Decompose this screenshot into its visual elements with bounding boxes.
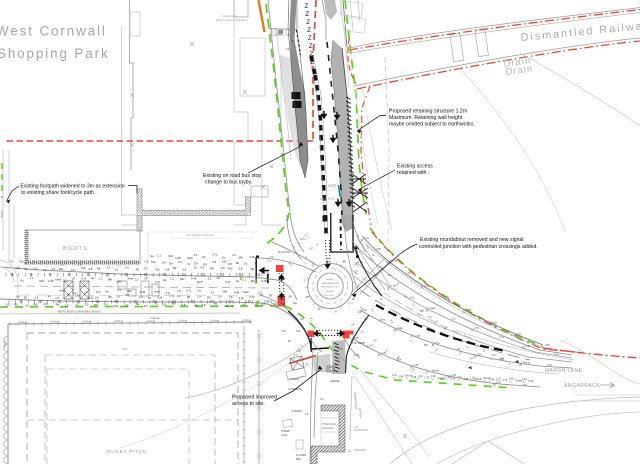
svg-text:1.10: 1.10	[444, 376, 449, 379]
svg-text:THRESHOLD: THRESHOLD	[322, 424, 337, 426]
svg-text:1.24: 1.24	[392, 374, 397, 377]
svg-text:0.8: 0.8	[125, 304, 129, 308]
svg-text:Z: Z	[307, 27, 311, 34]
svg-text:1.61: 1.61	[367, 345, 372, 348]
svg-text:0.5: 0.5	[221, 266, 225, 270]
svg-text:1.2k: 1.2k	[239, 296, 245, 300]
svg-text:access to site.: access to site.	[232, 401, 265, 407]
svg-text:1.82: 1.82	[466, 309, 471, 312]
svg-text:1.10: 1.10	[451, 317, 456, 320]
svg-text:1.2: 1.2	[300, 238, 304, 241]
svg-text:0.9: 0.9	[6, 303, 10, 307]
svg-text:1.4: 1.4	[197, 294, 201, 298]
svg-text:IC: IC	[194, 266, 197, 270]
svg-text:0.8: 0.8	[16, 266, 20, 270]
svg-text:to existing share foot/cycle p: to existing share foot/cycle path .	[21, 190, 97, 196]
svg-text:Gu: Gu	[91, 276, 95, 280]
svg-text:RUGBY PITCH: RUGBY PITCH	[107, 449, 147, 454]
svg-text:LC: LC	[287, 34, 290, 37]
svg-text:Existing roundabout removed an: Existing roundabout removed and new sign…	[420, 237, 524, 243]
svg-text:Tar: Tar	[250, 267, 254, 271]
svg-text:Tar: Tar	[173, 266, 177, 270]
svg-text:LEVELLED: LEVELLED	[322, 428, 334, 430]
svg-text:MH: MH	[180, 277, 184, 281]
svg-text:0.5: 0.5	[71, 268, 75, 272]
svg-text:TOP KERB: TOP KERB	[352, 342, 365, 345]
svg-text:Railings: Railings	[147, 321, 156, 323]
svg-text:0.55: 0.55	[354, 337, 359, 340]
svg-text:0.5: 0.5	[261, 302, 265, 306]
svg-text:Existing on road bus stop: Existing on road bus stop	[203, 173, 261, 179]
svg-text:1.45: 1.45	[412, 376, 417, 379]
svg-text:0.55: 0.55	[451, 377, 456, 380]
svg-text:0.98: 0.98	[477, 378, 482, 381]
svg-text:TaC: TaC	[296, 330, 301, 333]
svg-text:SV: SV	[47, 294, 51, 298]
svg-text:Z: Z	[305, 3, 309, 10]
svg-text:GRAVEL: GRAVEL	[330, 380, 341, 383]
svg-text:MH: MH	[424, 344, 428, 347]
svg-text:SV: SV	[126, 293, 130, 297]
svg-text:IC: IC	[76, 302, 79, 306]
svg-text:0.7c: 0.7c	[186, 289, 192, 293]
svg-text:BT: BT	[269, 294, 273, 298]
svg-text:MARSH LANE: MARSH LANE	[545, 368, 583, 374]
svg-text:MH: MH	[223, 289, 227, 293]
svg-text:1.82: 1.82	[522, 384, 527, 387]
svg-text:TARMAC: TARMAC	[292, 410, 303, 413]
svg-text:0.9: 0.9	[125, 266, 129, 270]
svg-text:1.1: 1.1	[232, 253, 236, 257]
svg-text:Grass: Grass	[429, 307, 436, 310]
svg-text:TaC: TaC	[81, 266, 86, 270]
svg-text:1.24: 1.24	[554, 353, 559, 356]
svg-text:1.2k: 1.2k	[157, 296, 163, 300]
svg-text:0.45: 0.45	[234, 290, 240, 294]
svg-text:BT: BT	[24, 295, 28, 299]
svg-text:0.55: 0.55	[474, 327, 479, 330]
svg-text:Tar: Tar	[56, 303, 60, 307]
svg-text:RS: RS	[94, 303, 98, 307]
svg-text:MH: MH	[239, 256, 243, 260]
svg-text:0.98: 0.98	[376, 248, 381, 251]
svg-text:0.5: 0.5	[104, 303, 108, 307]
svg-text:1.1: 1.1	[242, 278, 246, 282]
svg-text:change to bus layby.: change to bus layby.	[205, 180, 252, 186]
svg-text:TP: TP	[229, 296, 233, 300]
svg-text:1.45: 1.45	[490, 379, 495, 382]
svg-text:TaC: TaC	[151, 260, 156, 264]
svg-text:0.45: 0.45	[175, 256, 181, 260]
svg-text:WITH SIGN 0.8 7m: WITH SIGN 0.8 7m	[321, 287, 339, 289]
svg-text:0.75: 0.75	[503, 379, 508, 382]
svg-text:2.2: 2.2	[193, 253, 197, 257]
svg-text:2.35: 2.35	[526, 345, 531, 348]
svg-text:0.9: 0.9	[51, 267, 55, 271]
svg-text:1.9: 1.9	[178, 260, 182, 264]
svg-text:0.45: 0.45	[48, 279, 54, 283]
svg-text:TP: TP	[147, 296, 151, 300]
svg-text:0.9: 0.9	[492, 354, 496, 357]
svg-text:0.8: 0.8	[89, 267, 93, 271]
svg-text:SHRUB AROUND: SHRUB AROUND	[322, 282, 339, 285]
svg-text:Tar: Tar	[24, 267, 28, 271]
svg-text:Tarmac: Tarmac	[523, 361, 532, 364]
svg-text:Railings: Railings	[243, 320, 252, 322]
svg-text:TaC: TaC	[194, 304, 199, 308]
svg-text:IC: IC	[380, 298, 383, 301]
svg-text:Railings: Railings	[211, 320, 220, 322]
svg-text:Kerb: Kerb	[59, 289, 65, 293]
svg-text:Proposed retaining structure 1: Proposed retaining structure 1.2m	[389, 109, 467, 115]
svg-text:0.55: 0.55	[416, 335, 421, 338]
svg-text:TaC: TaC	[440, 378, 445, 381]
svg-text:0.45: 0.45	[249, 255, 255, 259]
svg-text:0.45: 0.45	[261, 279, 267, 283]
svg-text:A30: A30	[328, 183, 337, 188]
svg-text:2.10: 2.10	[418, 375, 423, 378]
svg-text:0.8: 0.8	[239, 267, 243, 271]
svg-text:0.9: 0.9	[200, 266, 204, 270]
svg-text:1.10: 1.10	[522, 378, 527, 381]
svg-text:G.ily: G.ily	[88, 295, 94, 299]
svg-text:1.45: 1.45	[547, 364, 552, 367]
svg-text:1.9: 1.9	[182, 268, 186, 272]
svg-text:2.2: 2.2	[208, 277, 212, 281]
svg-text:1.82: 1.82	[509, 378, 514, 381]
svg-text:METAL POST & CHAIN/RING FENCE: METAL POST & CHAIN/RING FENCE	[58, 311, 101, 314]
svg-text:LP: LP	[177, 289, 180, 293]
svg-text:Kerb: Kerb	[128, 277, 134, 281]
svg-text:0.7c: 0.7c	[212, 253, 218, 257]
svg-text:1.1: 1.1	[170, 276, 174, 280]
svg-text:Tarmac: Tarmac	[432, 369, 441, 372]
svg-text:Gu: Gu	[150, 254, 154, 258]
svg-text:SV: SV	[207, 296, 211, 300]
svg-text:1.9: 1.9	[65, 303, 69, 307]
svg-text:LP: LP	[145, 277, 148, 281]
svg-text:1.9: 1.9	[33, 266, 37, 270]
svg-text:TaC: TaC	[222, 260, 227, 264]
svg-text:Maximum. Retaining wall height: Maximum. Retaining wall height	[389, 115, 463, 121]
svg-text:0.75: 0.75	[496, 381, 501, 384]
svg-text:1.24: 1.24	[470, 377, 475, 380]
svg-text:IC: IC	[372, 254, 375, 257]
svg-text:Railings: Railings	[3, 340, 5, 349]
svg-text:BED: BED	[296, 458, 301, 461]
svg-text:Railings: Railings	[179, 321, 188, 323]
svg-text:0.5: 0.5	[9, 260, 13, 264]
svg-text:Tar: Tar	[214, 301, 218, 305]
svg-text:1.2: 1.2	[428, 316, 432, 319]
svg-text:1.1: 1.1	[117, 288, 121, 292]
svg-text:CLAD: CLAD	[281, 434, 288, 437]
svg-text:Tar: Tar	[97, 266, 101, 270]
svg-text:CLG 1 RD: CLG 1 RD	[324, 295, 334, 297]
svg-text:maybe omitted subject to earth: maybe omitted subject to earthworks.	[389, 122, 475, 128]
svg-text:0.98: 0.98	[399, 376, 404, 379]
svg-text:TaC: TaC	[272, 302, 277, 306]
svg-text:IC: IC	[232, 304, 235, 308]
svg-text:RS: RS	[210, 267, 214, 271]
svg-text:0.9: 0.9	[500, 358, 504, 361]
svg-text:2.2: 2.2	[135, 277, 139, 281]
svg-text:1.4: 1.4	[35, 295, 39, 299]
svg-text:Wells & Spencer and Boots: Wells & Spencer and Boots	[216, 18, 248, 22]
svg-text:TaC: TaC	[19, 259, 24, 263]
svg-text:0.5: 0.5	[144, 266, 148, 270]
svg-text:LP: LP	[202, 255, 205, 259]
svg-text:RS: RS	[14, 303, 18, 307]
svg-text:1.10: 1.10	[517, 333, 522, 336]
svg-text:West Cornwall: West Cornwall	[0, 24, 107, 39]
svg-text:Gu: Gu	[198, 289, 202, 293]
svg-text:Tar: Tar	[136, 302, 140, 306]
svg-text:MH: MH	[108, 278, 112, 282]
svg-text:IC: IC	[116, 267, 119, 271]
svg-text:2.35: 2.35	[464, 378, 469, 381]
svg-text:0.5: 0.5	[282, 330, 286, 333]
svg-text:MH: MH	[169, 254, 173, 258]
svg-text:ANGARRACK: ANGARRACK	[564, 383, 600, 389]
svg-text:IC: IC	[188, 262, 191, 266]
svg-text:0.5: 0.5	[182, 303, 186, 307]
svg-text:0.45: 0.45	[116, 280, 122, 284]
svg-text:1.61: 1.61	[499, 336, 504, 339]
svg-text:1.9: 1.9	[224, 304, 228, 308]
svg-text:Kerb: Kerb	[154, 289, 160, 293]
svg-text:Railings: Railings	[51, 322, 60, 324]
svg-text:LP: LP	[217, 276, 220, 280]
svg-text:0.6: 0.6	[95, 296, 99, 300]
svg-text:0.7c: 0.7c	[155, 280, 161, 284]
svg-text:IC: IC	[44, 268, 47, 272]
svg-text:0.7c: 0.7c	[96, 290, 102, 294]
svg-text:DELIVERIES ENTRANCE: DELIVERIES ENTRANCE	[186, 234, 214, 237]
svg-text:1.61: 1.61	[457, 376, 462, 379]
svg-text:Grass: Grass	[491, 321, 498, 324]
svg-text:2.10: 2.10	[424, 284, 429, 287]
svg-text:TaC: TaC	[228, 266, 233, 270]
svg-text:controlled junction with pedes: controlled junction with pedestrian cros…	[419, 244, 538, 250]
svg-text:RS: RS	[59, 267, 63, 271]
svg-text:1.1: 1.1	[98, 277, 102, 281]
svg-text:Existing access: Existing access	[397, 164, 433, 170]
svg-text:TaC: TaC	[33, 303, 38, 307]
svg-text:G.ily: G.ily	[249, 295, 255, 299]
svg-text:0.5: 0.5	[213, 260, 217, 264]
svg-text:0.55: 0.55	[529, 380, 534, 383]
svg-text:Railings: Railings	[0, 210, 2, 219]
svg-text:1.61: 1.61	[435, 342, 440, 345]
svg-text:1.9: 1.9	[107, 265, 111, 269]
svg-text:MH: MH	[127, 289, 131, 293]
svg-text:Existing footpath widened to 3: Existing footpath widened to 3m as exten…	[21, 184, 125, 190]
svg-text:retained with .: retained with .	[397, 170, 429, 176]
svg-text:1.4: 1.4	[278, 295, 282, 299]
svg-text:2.2: 2.2	[63, 279, 67, 283]
svg-text:0.9: 0.9	[194, 261, 198, 265]
svg-text:Gu: Gu	[236, 279, 240, 283]
svg-text:GRASS: GRASS	[326, 278, 334, 281]
svg-text:1.82: 1.82	[431, 375, 436, 378]
svg-text:1.1: 1.1	[30, 276, 34, 280]
svg-text:0.8: 0.8	[165, 268, 169, 272]
svg-text:1.9: 1.9	[144, 304, 148, 308]
svg-text:SHRUB: SHRUB	[326, 291, 334, 293]
svg-text:0.6: 0.6	[16, 294, 20, 298]
svg-text:Pitch: Pitch	[122, 347, 128, 351]
svg-text:TaC: TaC	[155, 268, 160, 272]
svg-text:Shopping Park: Shopping Park	[0, 46, 110, 61]
svg-text:Z: Z	[306, 19, 310, 26]
svg-text:Railings: Railings	[19, 322, 28, 324]
svg-text:1.24: 1.24	[477, 353, 482, 356]
svg-text:Gu: Gu	[163, 278, 167, 282]
svg-text:LP: LP	[72, 276, 75, 280]
svg-text:Grass: Grass	[379, 319, 386, 322]
svg-text:0.8: 0.8	[202, 303, 206, 307]
svg-text:LP: LP	[85, 290, 88, 294]
svg-text:FLOWER: FLOWER	[296, 454, 307, 457]
svg-text:BOOTS: BOOTS	[63, 246, 88, 252]
svg-text:0.45: 0.45	[140, 290, 146, 294]
svg-text:Z: Z	[305, 11, 309, 18]
svg-text:2.35: 2.35	[455, 348, 460, 351]
svg-text:Railings: Railings	[83, 321, 92, 323]
svg-text:Z: Z	[308, 35, 312, 42]
svg-text:MH: MH	[251, 279, 255, 283]
svg-text:0.9: 0.9	[85, 303, 89, 307]
svg-text:0.55: 0.55	[545, 344, 550, 347]
svg-text:1.45: 1.45	[406, 272, 411, 275]
svg-text:0.8: 0.8	[228, 262, 232, 266]
svg-text:Kerb: Kerb	[55, 278, 61, 282]
svg-text:0.75: 0.75	[425, 377, 430, 380]
svg-text:Entrance To: Entrance To	[223, 14, 237, 18]
svg-text:MARSH LANE: MARSH LANE	[320, 196, 356, 201]
svg-text:MH: MH	[420, 310, 424, 313]
svg-text:TaC: TaC	[114, 304, 119, 308]
svg-text:RS: RS	[136, 268, 140, 272]
svg-text:0.7c: 0.7c	[226, 280, 232, 284]
svg-text:1.9: 1.9	[243, 262, 247, 266]
svg-text:1.7: 1.7	[346, 250, 350, 253]
svg-text:2.4: 2.4	[55, 296, 59, 300]
svg-text:2.10: 2.10	[496, 377, 501, 380]
svg-text:IC: IC	[255, 261, 258, 265]
svg-text:Gu: Gu	[105, 290, 109, 294]
svg-text:0.8: 0.8	[162, 261, 166, 265]
svg-text:Railings: Railings	[115, 321, 124, 323]
svg-text:Tar: Tar	[293, 301, 297, 305]
svg-text:0.5: 0.5	[25, 303, 29, 307]
svg-text:Z: Z	[309, 43, 313, 50]
svg-text:1.24: 1.24	[364, 237, 369, 240]
svg-text:Kerb: Kerb	[243, 290, 249, 294]
svg-text:0.7c: 0.7c	[81, 277, 87, 281]
svg-text:Gu: Gu	[222, 256, 226, 260]
svg-text:1.1: 1.1	[157, 253, 161, 257]
svg-text:Kerb: Kerb	[197, 280, 203, 284]
svg-text:TIMBER: TIMBER	[281, 430, 290, 433]
svg-text:1.82: 1.82	[409, 296, 414, 299]
svg-text:Proposed improved: Proposed improved	[232, 395, 277, 401]
svg-text:2.4: 2.4	[218, 294, 222, 298]
svg-text:0.8: 0.8	[300, 318, 304, 321]
svg-text:SV: SV	[289, 294, 293, 298]
svg-text:0.75: 0.75	[444, 297, 449, 300]
svg-text:PLANTING: PLANTING	[278, 251, 291, 254]
svg-text:1.1: 1.1	[211, 291, 215, 295]
svg-text:GRAVEL: GRAVEL	[150, 317, 161, 320]
svg-text:Gu: Gu	[20, 279, 24, 283]
svg-text:0.8: 0.8	[339, 348, 343, 351]
svg-text:Tar: Tar	[169, 261, 173, 265]
svg-text:Tar: Tar	[235, 261, 239, 265]
svg-text:MH: MH	[40, 279, 44, 283]
